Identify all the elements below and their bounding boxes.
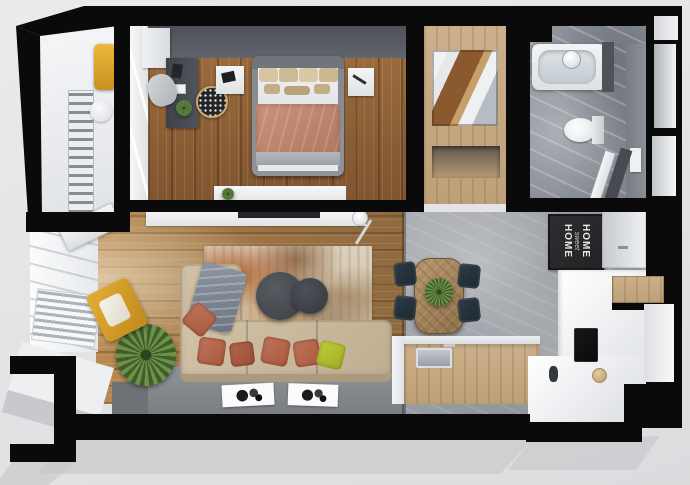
wall-bottom bbox=[60, 414, 530, 440]
right-wall-niche-middle bbox=[652, 136, 676, 196]
wall-bathroom-entry bbox=[524, 198, 648, 212]
right-wall-niche-top-box bbox=[654, 16, 678, 40]
wall-kitchen-corner bbox=[624, 384, 682, 428]
wall-balcony-divider bbox=[114, 18, 130, 218]
wall-bedroom-closet bbox=[406, 22, 424, 212]
right-wall-niche-bottom bbox=[644, 304, 674, 382]
wall-balcony-bottom bbox=[26, 212, 130, 232]
wall-bracket-arm-bottom bbox=[10, 444, 76, 462]
walls-and-shadows bbox=[0, 0, 690, 485]
kitchen-passthrough-shelf bbox=[612, 276, 664, 303]
wall-left-balcony bbox=[16, 26, 42, 216]
apartment-floorplan-render: HOME sweet HOME bbox=[0, 0, 690, 485]
wall-bedroom-living bbox=[128, 200, 422, 212]
wall-bathroom-step bbox=[530, 24, 552, 42]
shadow-bottom bbox=[36, 440, 532, 474]
wall-closet-bathroom bbox=[506, 22, 530, 212]
right-wall-niche-upper bbox=[654, 44, 676, 128]
